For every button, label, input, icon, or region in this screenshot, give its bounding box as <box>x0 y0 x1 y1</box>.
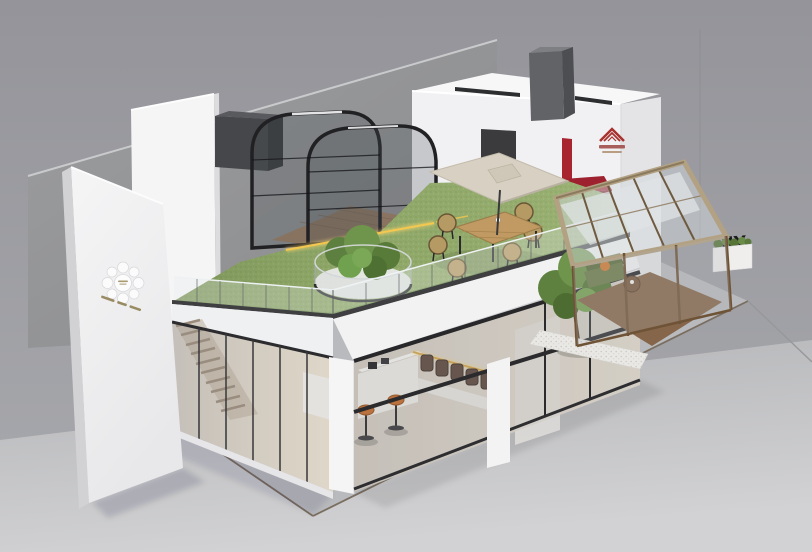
facade-pier <box>487 357 510 468</box>
logo-center-circle <box>115 275 132 292</box>
render-canvas: JY <box>0 0 812 552</box>
chimney-front <box>529 51 564 121</box>
tree-canopy <box>352 248 372 268</box>
logo-micro-text-bar <box>118 281 128 283</box>
chimney-side <box>562 47 575 119</box>
logo-caption-bar <box>599 145 625 149</box>
logo-micro-text-bar <box>120 284 127 285</box>
chimney <box>529 47 575 121</box>
scene-svg: JY <box>0 0 812 552</box>
corner-column <box>329 357 354 494</box>
logo-subcaption-bar <box>602 151 622 153</box>
